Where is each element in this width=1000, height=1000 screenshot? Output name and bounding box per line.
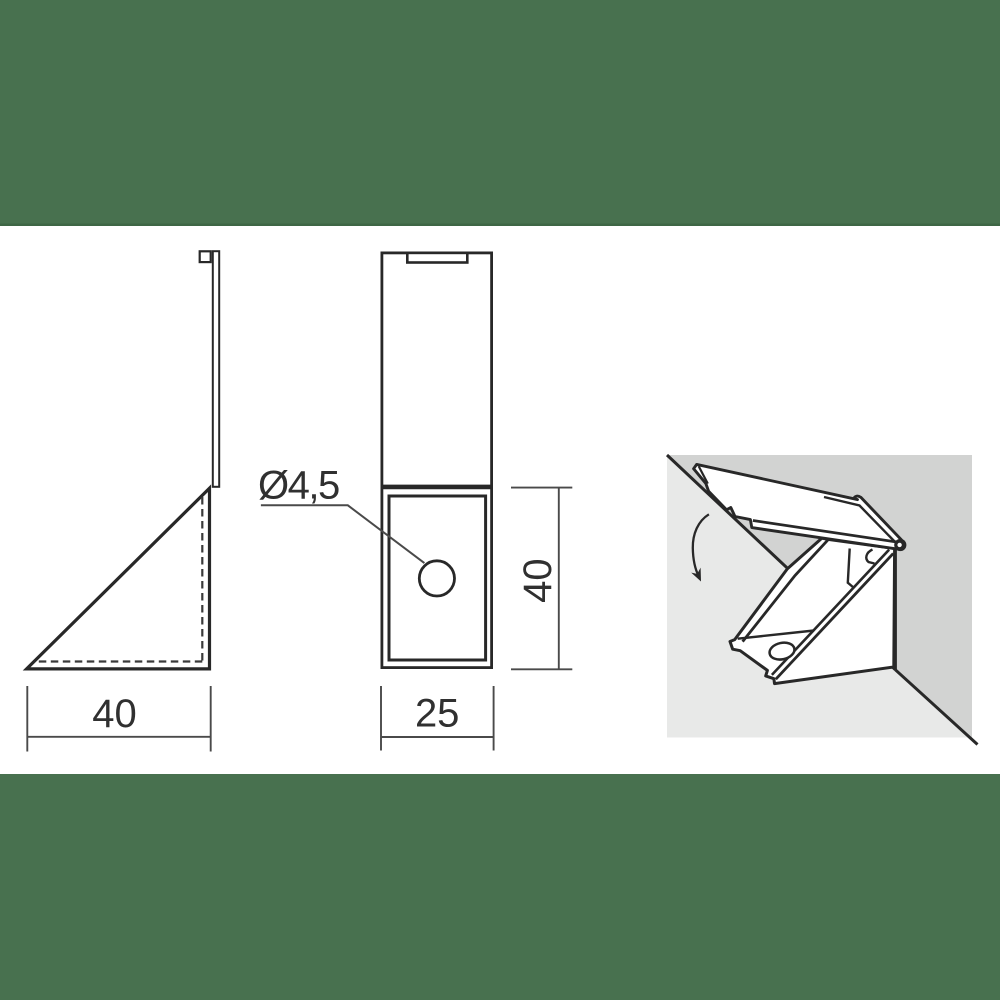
svg-text:25: 25: [415, 692, 460, 736]
svg-text:Ø4,5: Ø4,5: [258, 463, 339, 507]
svg-text:40: 40: [92, 692, 137, 736]
svg-text:40: 40: [516, 558, 560, 603]
